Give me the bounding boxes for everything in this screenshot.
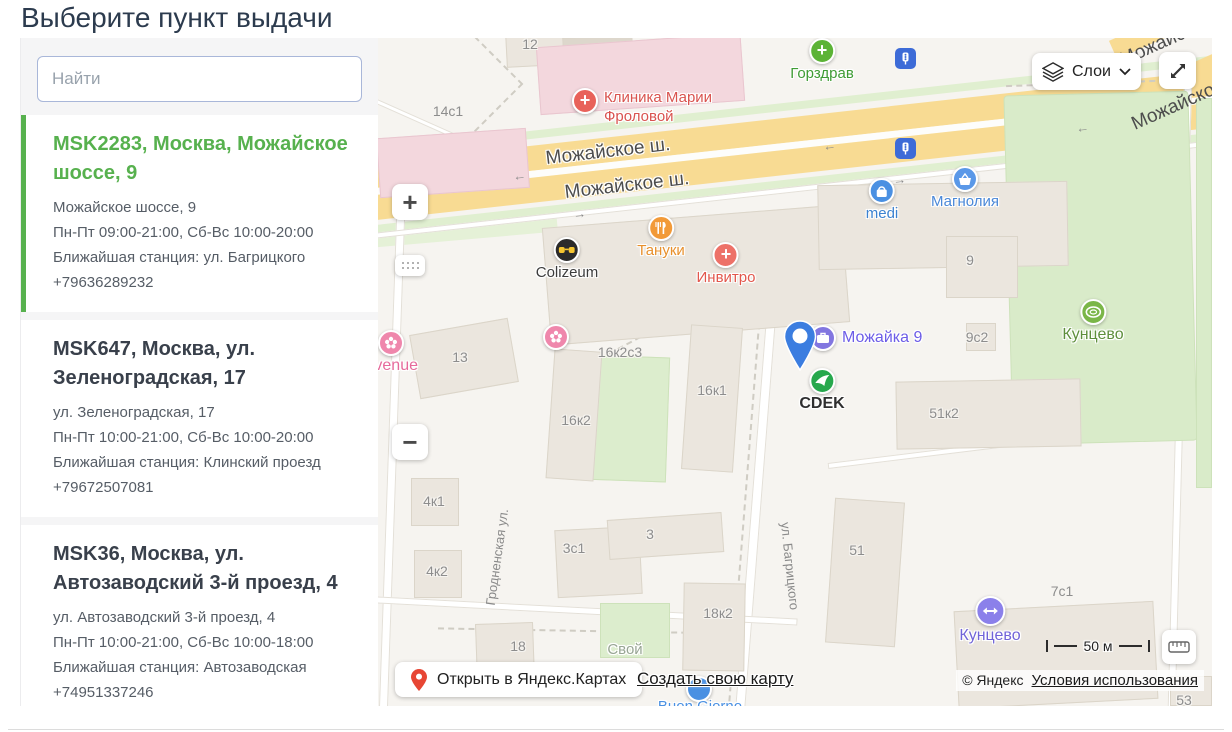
building-9 [946,236,1018,298]
expand-icon [1168,61,1188,81]
road-arrow-icon: ← [822,137,837,153]
shopping-bag-icon [869,178,895,204]
pickup-station: Ближайшая станция: ул. Багрицкого [53,245,354,270]
building-label: 3 [646,526,654,542]
map-copyright: © Яндекс Условия использования [956,670,1204,691]
dots-icon [401,261,419,271]
street-label-grodnenskaya: Гродненская ул. [483,508,511,607]
pickup-station: Ближайшая станция: Автозаводская [53,655,354,680]
ruler-button[interactable] [1162,630,1196,664]
traffic-light-icon [895,48,916,69]
ruler-icon [1168,640,1190,654]
medical-cross-icon: + [572,88,598,114]
building-label: 16к2 [561,412,590,428]
building-label: 18 [510,638,526,654]
station-arrows-icon [975,596,1005,626]
poi-label: Магнолия [931,193,999,210]
layers-icon [1042,62,1064,82]
zoom-in-button[interactable]: + [392,184,428,220]
pickup-title: MSK2283, Москва, Можайское шоссе, 9 [53,130,354,188]
open-in-yandex-maps-button[interactable]: Открыть в Яндекс.Картах [395,662,642,697]
pickup-item-msk647[interactable]: MSK647, Москва, ул. Зеленоградская, 17 у… [21,320,378,517]
scale-line [1119,645,1142,647]
building-51k2 [895,378,1081,449]
poi-label-buon-giorno: Buon Giorno [658,698,742,706]
building-51 [825,498,905,648]
zoom-in-label: + [402,187,417,218]
zoom-slider-handle[interactable] [395,255,425,276]
building-label: 3с1 [563,540,586,556]
zoom-out-label: − [402,427,417,458]
restaurant-icon [648,215,674,241]
poi-label: Avenue [378,357,418,375]
building-label: 14с1 [433,103,463,119]
scale-label: 50 м [1083,638,1112,654]
poi-label: Тануки [637,242,685,259]
poi-tanuki[interactable]: Тануки [637,215,685,259]
building-label: 4к2 [426,563,448,579]
scale-tick [1148,640,1150,652]
pharmacy-cross-icon: + [809,38,835,64]
building-label: 18к2 [703,605,732,621]
layers-label: Слои [1072,63,1111,81]
create-map-link[interactable]: Создать свою карту [637,669,793,689]
poi-magnolia[interactable]: Магнолия [931,166,999,210]
pickup-item-msk36[interactable]: MSK36, Москва, ул. Автозаводский 3-й про… [21,525,378,706]
poi-label: Кунцево [959,627,1020,645]
poi-kuntsevo-stadium[interactable]: Кунцево [1062,299,1123,344]
gaming-glasses-icon [554,237,580,263]
building-label: 16к2с3 [598,344,642,360]
flower-icon [378,330,404,356]
traffic-light-icon [895,138,916,159]
pickup-phone: +74951337246 [53,680,354,705]
poi-medi[interactable]: medi [866,178,899,222]
poi-label: Инвитро [697,269,756,286]
poi-label: Горздрав [790,65,854,82]
poi-label: Можайка 9 [842,329,922,347]
medical-cross-icon: + [713,242,739,268]
chevron-down-icon [1119,68,1131,76]
road-arrow-icon: ← [1075,119,1090,135]
building-label: 51 [849,542,865,558]
poi-label: medi [866,205,899,222]
pickup-point-page: Выберите пункт выдачи MSK2283, Москва, М… [0,0,1232,732]
scale-bar: 50 м [1046,638,1150,654]
basket-icon [952,166,978,192]
pickup-hours: Пн-Пт 09:00-21:00, Сб-Вс 10:00-20:00 [53,220,354,245]
copyright-text: © Яндекс [962,672,1023,688]
building-16k1 [681,324,743,472]
layers-button[interactable]: Слои [1032,53,1141,90]
road-arrow-icon: ← [512,167,527,183]
building-3 [607,512,725,560]
building-label: 9 [966,252,974,268]
street-label-bagritskogo: ул. Багрицкого [778,521,802,610]
fullscreen-button[interactable] [1159,52,1196,89]
building-18k2 [682,582,746,671]
pickup-phone: +79636289232 [53,270,354,295]
pickup-address: ул. Зеленоградская, 17 [53,400,354,425]
search-input[interactable] [37,56,362,102]
pickup-hours: Пн-Пт 10:00-21:00, Сб-Вс 10:00-18:00 [53,630,354,655]
pickup-hours: Пн-Пт 10:00-21:00, Сб-Вс 10:00-20:00 [53,425,354,450]
poi-clinic[interactable]: + Клиника Марии Фроловой [572,88,722,126]
search-section [21,38,378,115]
pickup-title: MSK36, Москва, ул. Автозаводский 3-й про… [53,540,354,598]
pickup-address: Можайское шоссе, 9 [53,195,354,220]
building-label: 12 [522,38,538,52]
pickup-widget: MSK2283, Москва, Можайское шоссе, 9 Можа… [20,38,1212,706]
building-label: 13 [452,349,468,365]
map[interactable]: 12 14с1 13 16к2с3 16к2 16к1 9 9с2 51к2 5… [378,38,1212,706]
page-title: Выберите пункт выдачи [21,2,333,34]
scale-line [1054,645,1077,647]
pickup-item-msk2283[interactable]: MSK2283, Москва, Можайское шоссе, 9 Можа… [21,115,378,312]
pickup-list: MSK2283, Москва, Можайское шоссе, 9 Можа… [21,115,378,706]
scale-tick [1046,640,1048,652]
poi-gorzdrav[interactable]: + Горздрав [790,38,854,82]
page-divider [8,729,1224,730]
building-label: 51к2 [929,405,958,421]
pickup-address: ул. Автозаводский 3-й проезд, 4 [53,605,354,630]
selected-point-pin[interactable] [783,320,817,377]
sidebar: MSK2283, Москва, Можайское шоссе, 9 Можа… [20,38,378,706]
poi-invitro[interactable]: + Инвитро [697,242,756,286]
poi-kuntsevo-station[interactable]: Кунцево [959,596,1020,645]
stadium-icon [1080,299,1106,325]
building-label: 7с1 [1051,583,1074,599]
poi-label: Кунцево [1062,326,1123,344]
flower-icon[interactable] [543,324,569,350]
pickup-phone: +79672507081 [53,475,354,500]
green-edge [1196,98,1212,488]
terms-link[interactable]: Условия использования [1032,672,1199,689]
poi-avenue[interactable]: Avenue [378,330,418,375]
poi-label-svoy: Свой [607,641,642,658]
poi-colizeum[interactable]: Colizeum [536,237,599,281]
poi-label: Клиника Марии Фроловой [604,88,722,126]
building-label: 16к1 [697,382,726,398]
building-label: 4к1 [423,493,445,509]
poi-label: CDEK [799,395,844,413]
building-label: 9с2 [966,329,989,345]
building-label: 53 [1176,692,1192,706]
road-arrow-icon: → [572,205,587,221]
poi-label: Colizeum [536,264,599,281]
pickup-station: Ближайшая станция: Клинский проезд [53,450,354,475]
zoom-out-button[interactable]: − [392,424,428,460]
poi-mozhayka9[interactable]: Можайка 9 [810,325,922,351]
open-in-yandex-maps-label: Открыть в Яндекс.Картах [437,671,626,689]
map-pin-icon [411,669,427,691]
pickup-title: MSK647, Москва, ул. Зеленоградская, 17 [53,335,354,393]
